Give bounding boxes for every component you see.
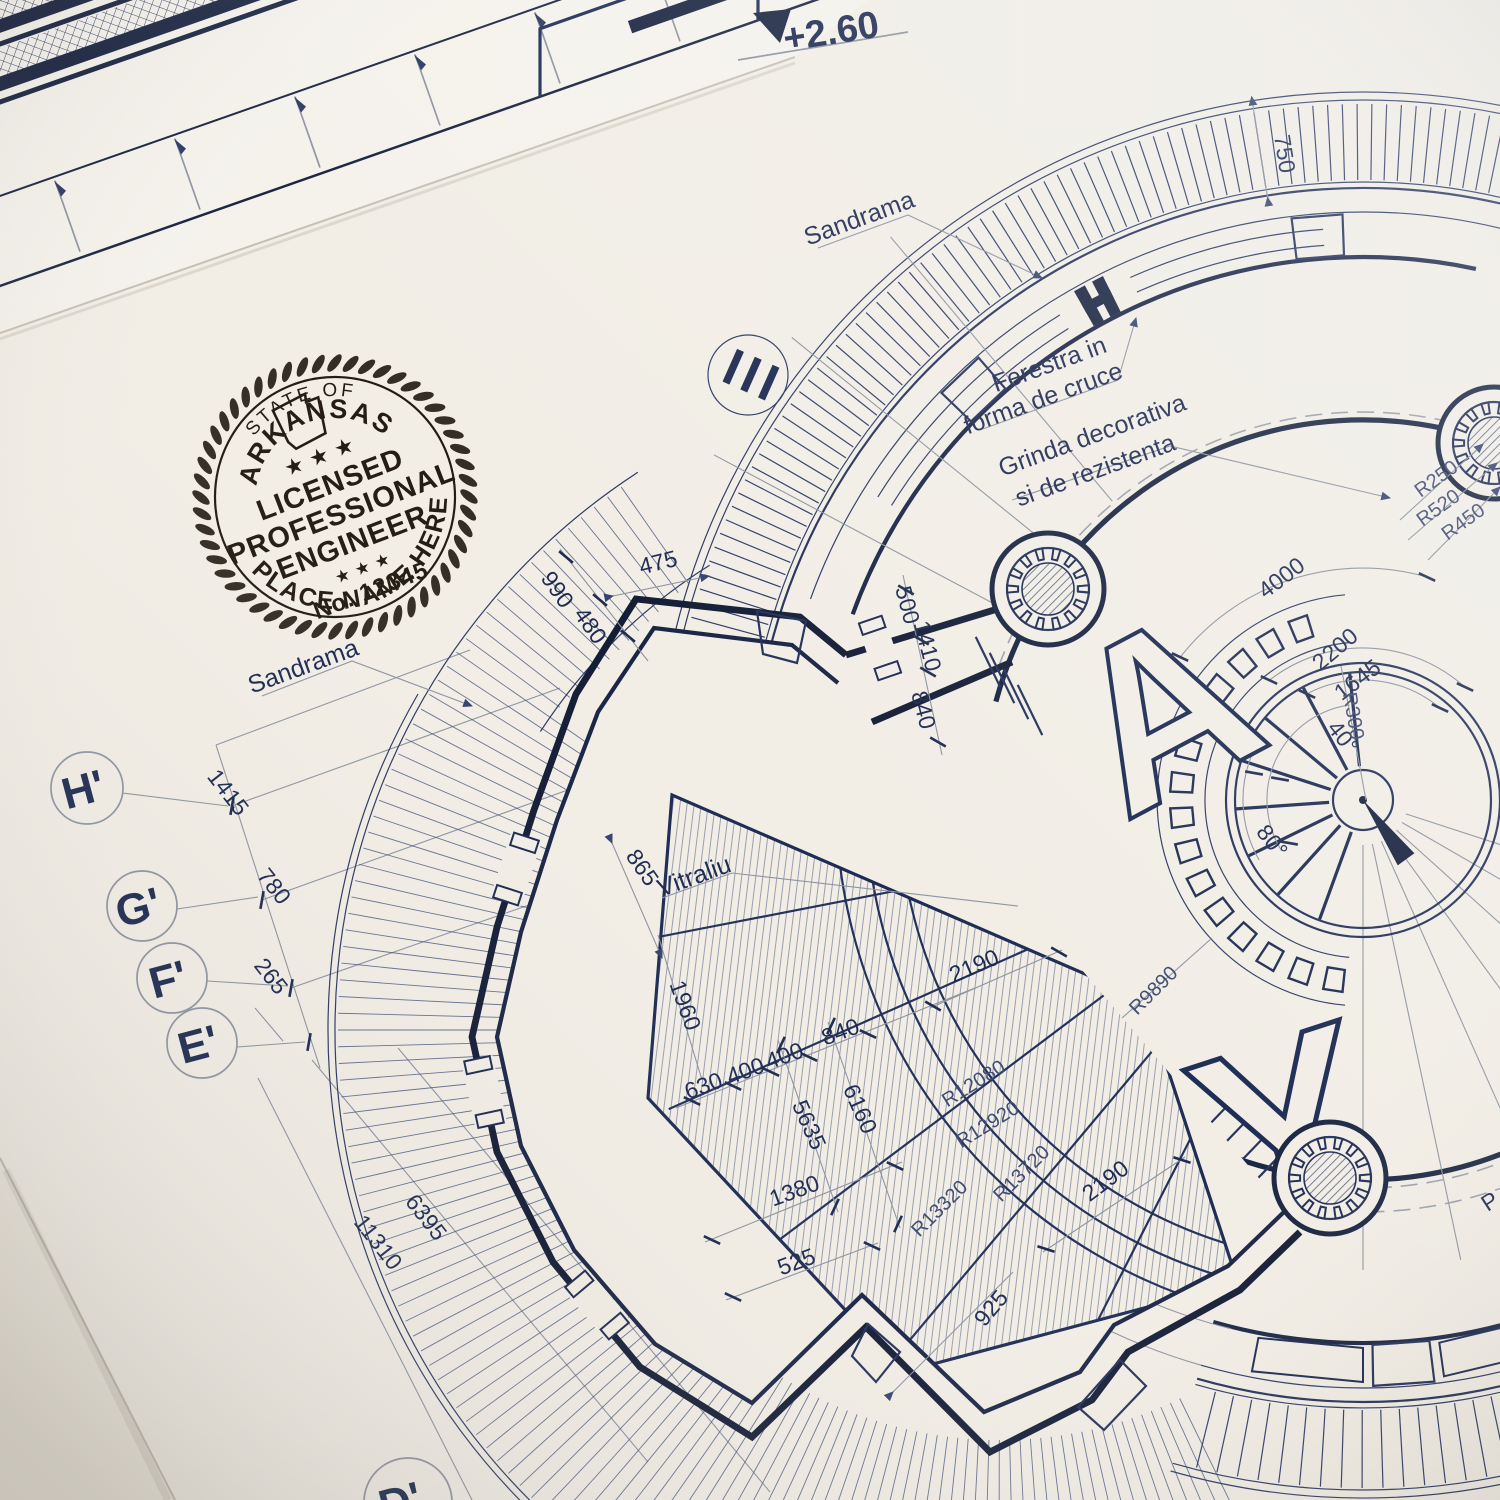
blueprint-photo: A Y 750 475 990 480 500 1410 840 865 196… (0, 0, 1500, 1500)
vignette-overlay (0, 0, 1500, 1500)
blueprint-drawing: A Y 750 475 990 480 500 1410 840 865 196… (0, 0, 1500, 1500)
